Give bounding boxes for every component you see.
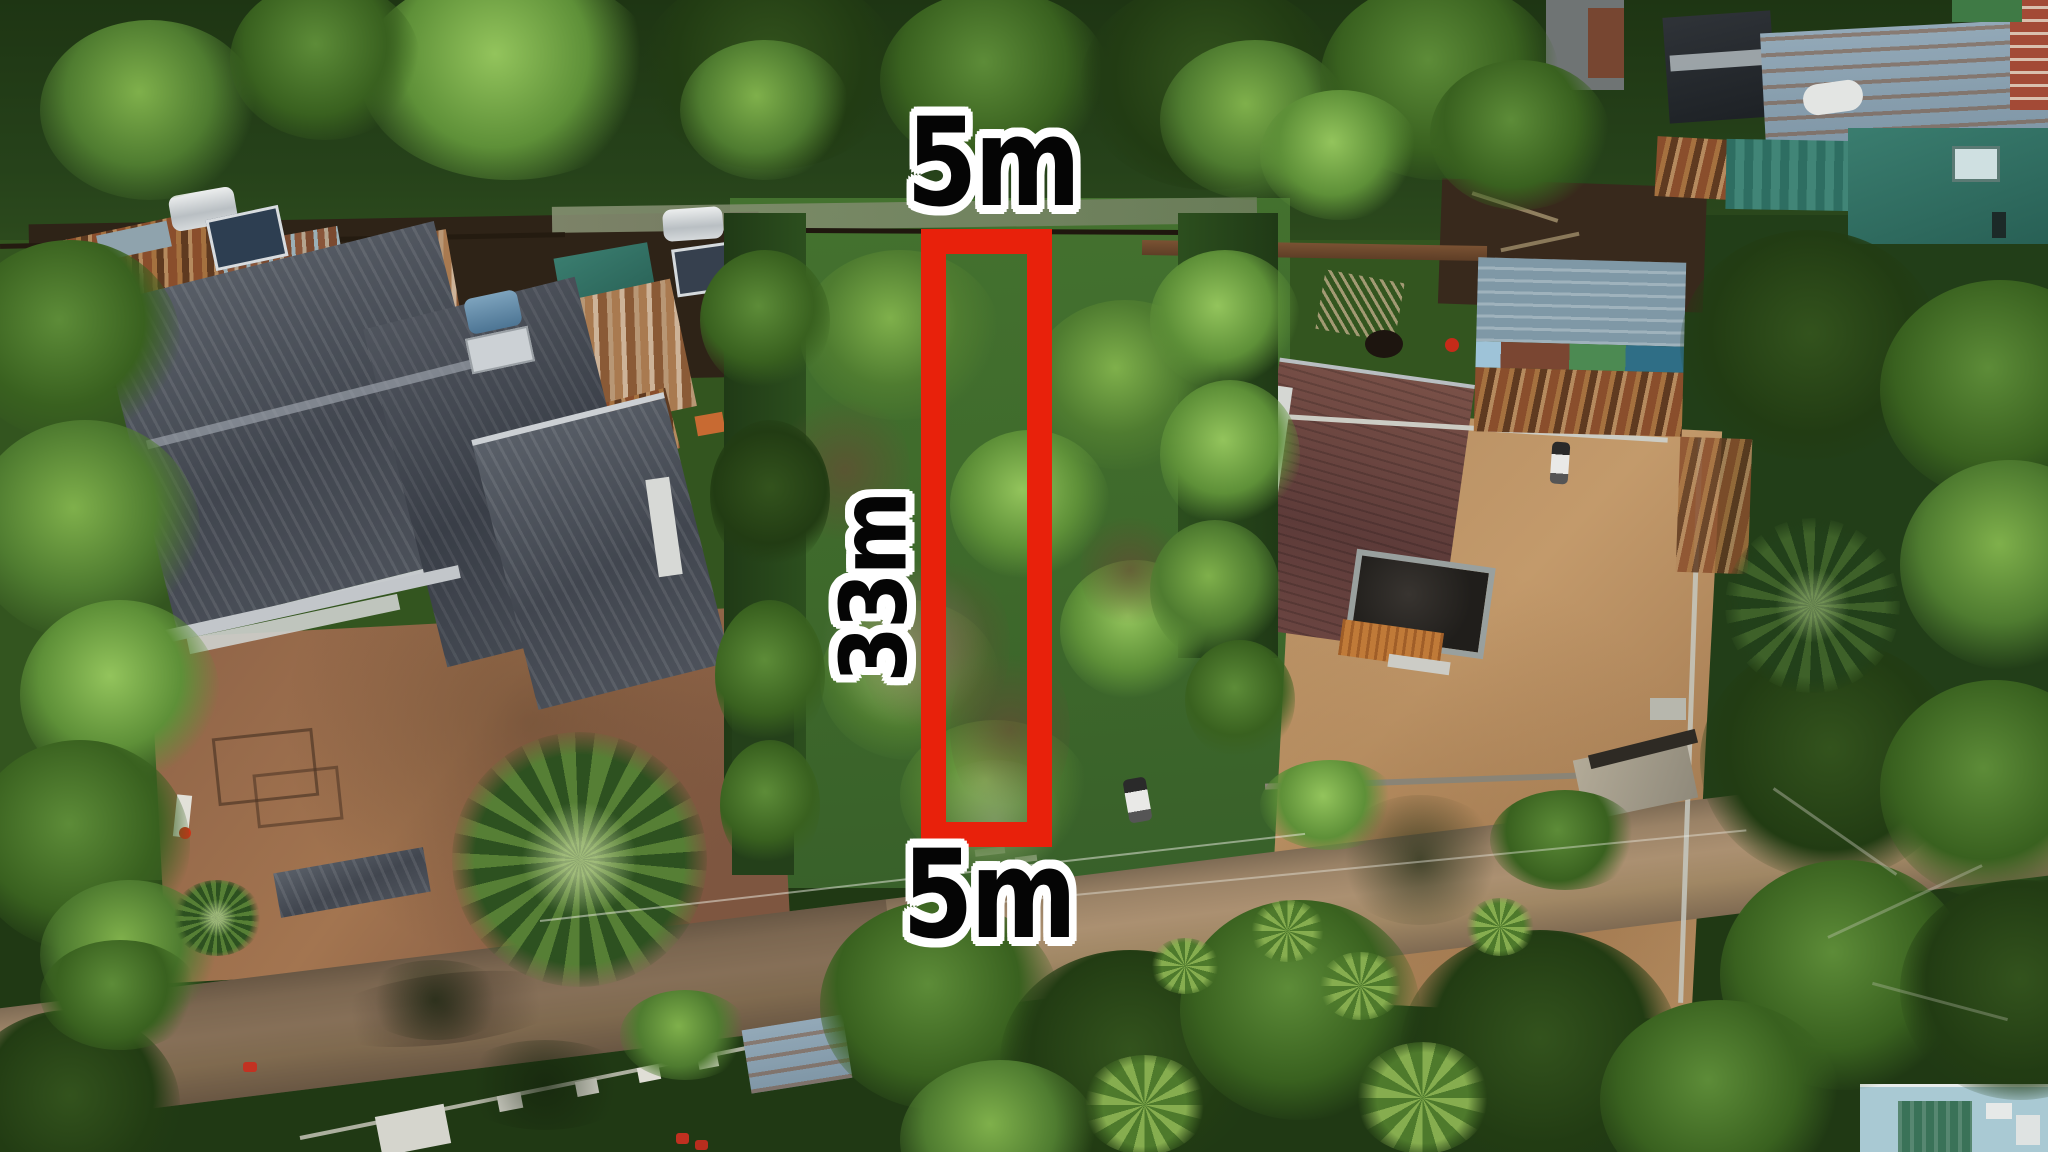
depth-label: 33m: [827, 480, 923, 696]
hedge-bush: [715, 600, 825, 750]
tree-canopy: [680, 40, 850, 180]
motorbike: [1550, 441, 1571, 484]
green-roof-sliver: [1952, 0, 2022, 22]
skylight-window: [1952, 146, 2000, 182]
hedge-bush: [700, 250, 830, 390]
vine-bush: [1150, 250, 1300, 390]
palm-fronds: [1355, 1042, 1490, 1152]
concrete-steps: [1650, 698, 1686, 720]
banana-plant: [1250, 900, 1325, 962]
coconut-palm-tree: [452, 732, 707, 987]
roadside-bush: [620, 990, 750, 1080]
solar-water-heater-tank: [662, 206, 724, 242]
palm-fronds: [1082, 1055, 1207, 1152]
hedge-bush: [1185, 640, 1295, 760]
teal-inset-panel: [1898, 1101, 1972, 1152]
land-plot-outline: [921, 229, 1052, 847]
white-rooftop-object: [1986, 1103, 2012, 1119]
orange-tarp: [694, 412, 725, 437]
brown-panel: [1588, 8, 1624, 78]
vine-bush: [1160, 380, 1300, 530]
roadside-bush: [1490, 790, 1640, 890]
banana-plant: [1150, 938, 1220, 994]
ground-marking: [252, 766, 343, 829]
hedge-bush: [720, 740, 820, 870]
tree-canopy: [1260, 90, 1420, 220]
aerial-land-plot-photo: 5m 33m 5m: [0, 0, 2048, 1152]
roadside-bush: [40, 940, 200, 1050]
vine-bush: [1150, 520, 1280, 660]
multicolor-shed: [1474, 257, 1686, 436]
banana-plant: [1318, 952, 1403, 1020]
hedge-bush: [710, 420, 830, 570]
tree-shadow: [360, 960, 510, 1040]
bottom-width-label: 5m: [887, 830, 1089, 960]
shed-rust-roof: [1474, 367, 1684, 437]
red-motorbike: [695, 1140, 708, 1150]
tree-shadow: [455, 1040, 635, 1130]
dark-pit: [1365, 330, 1403, 358]
tree-canopy: [1430, 60, 1610, 210]
teal-flat-roof: [1848, 128, 2048, 244]
shed-blue-roof: [1476, 257, 1686, 346]
tree-canopy: [40, 20, 260, 200]
teal-corrugated-band: [1725, 139, 1854, 211]
white-rooftop-object: [2016, 1115, 2040, 1145]
rust-roof-small: [1654, 136, 1731, 200]
red-bucket: [1445, 338, 1459, 352]
cycad-palm: [172, 880, 262, 956]
red-motorbike: [676, 1133, 689, 1144]
dark-slot: [1992, 212, 2006, 238]
red-vehicle: [243, 1062, 257, 1072]
palm-tree: [1725, 518, 1900, 693]
top-width-label: 5m: [891, 98, 1093, 228]
